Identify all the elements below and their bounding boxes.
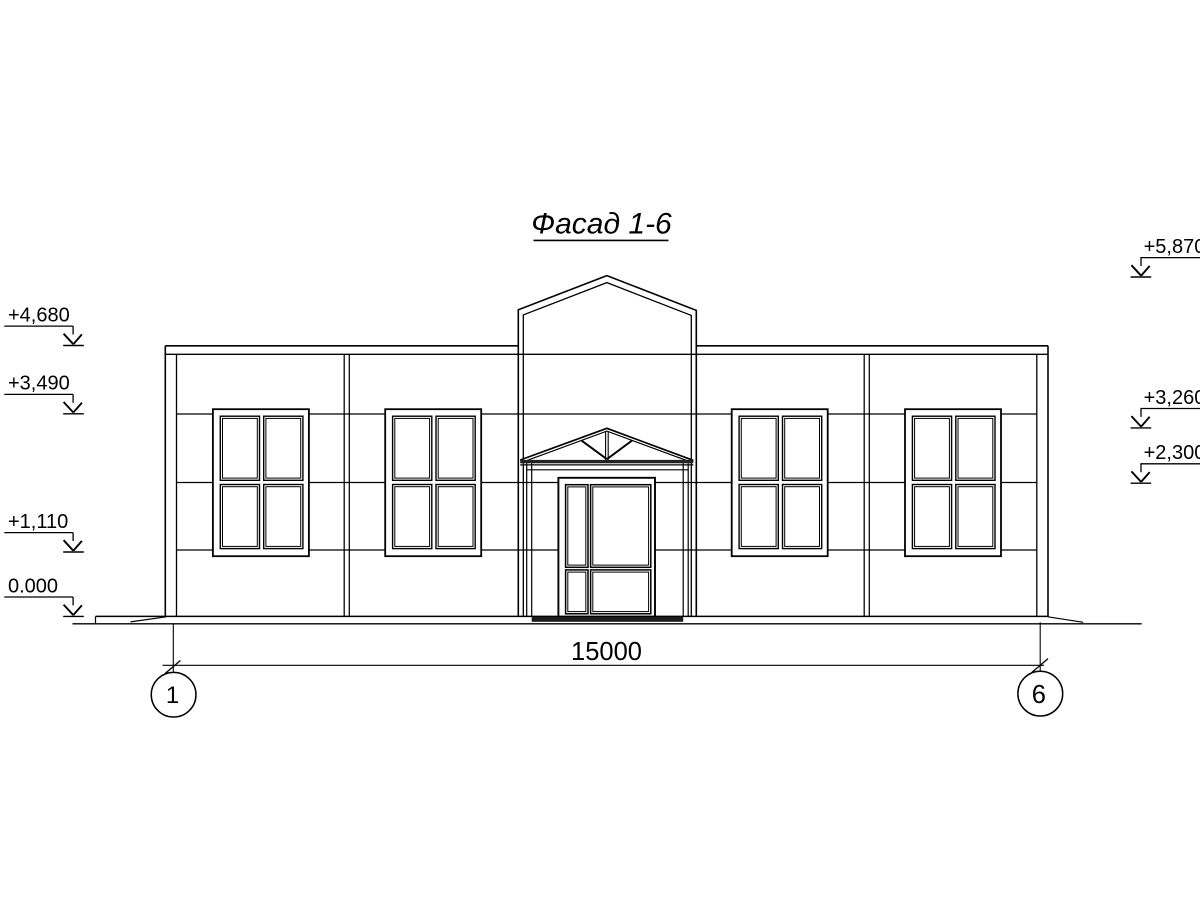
svg-text:6: 6 <box>1032 681 1046 709</box>
svg-text:0.000: 0.000 <box>8 575 58 597</box>
svg-text:+3,490: +3,490 <box>8 373 70 395</box>
svg-text:Фасад 1-6: Фасад 1-6 <box>531 208 672 241</box>
svg-text:15000: 15000 <box>571 638 642 666</box>
svg-text:+5,870: +5,870 <box>1144 236 1200 258</box>
svg-text:+3,260: +3,260 <box>1144 387 1200 409</box>
svg-text:+4,680: +4,680 <box>8 304 70 326</box>
svg-text:1: 1 <box>166 682 179 709</box>
svg-text:+2,300: +2,300 <box>1144 442 1200 464</box>
svg-text:+1,110: +1,110 <box>8 511 68 533</box>
